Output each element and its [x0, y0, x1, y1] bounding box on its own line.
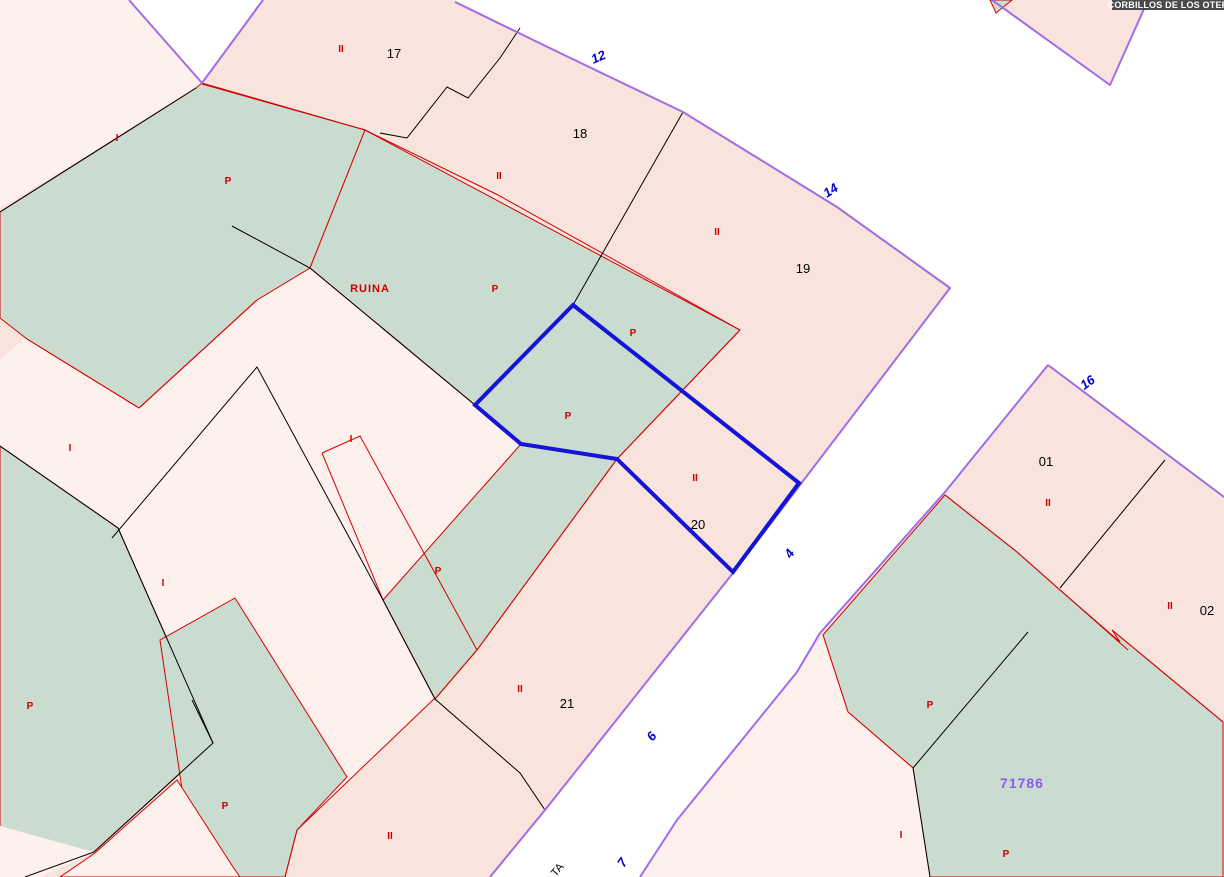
- parcel-number-21: 21: [560, 696, 574, 711]
- use-label: P: [435, 566, 442, 577]
- use-label: II: [692, 473, 698, 484]
- use-label: II: [714, 227, 720, 238]
- use-label: II: [1045, 498, 1051, 509]
- use-label: P: [1003, 849, 1010, 860]
- use-label: I: [350, 434, 353, 445]
- use-label: II: [1167, 601, 1173, 612]
- cadastral-map-viewport[interactable]: 17 18 19 20 21 01 02 II I P II P II P P …: [0, 0, 1224, 877]
- use-label: P: [927, 700, 934, 711]
- use-label: P: [27, 701, 34, 712]
- cadastral-map-canvas[interactable]: 17 18 19 20 21 01 02 II I P II P II P P …: [0, 0, 1224, 877]
- use-label: I: [162, 578, 165, 589]
- use-label: II: [387, 831, 393, 842]
- street-name-fragment: TA: [549, 861, 567, 877]
- use-label: P: [225, 176, 232, 187]
- block-number-label: 71786: [1000, 775, 1044, 791]
- use-label: I: [900, 830, 903, 841]
- use-label: II: [338, 44, 344, 55]
- use-label: II: [517, 684, 523, 695]
- ruina-label: RUINA: [350, 283, 390, 295]
- use-label: II: [496, 171, 502, 182]
- street-number-7: 7: [614, 855, 631, 870]
- parcel-number-02: 02: [1200, 603, 1214, 618]
- street-number-4: 4: [781, 546, 798, 562]
- street-number-12: 12: [589, 47, 609, 67]
- parcel-number-01: 01: [1039, 454, 1053, 469]
- use-label: I: [116, 133, 119, 144]
- top-right-block[interactable]: [992, 0, 1148, 85]
- use-label: P: [565, 411, 572, 422]
- use-label: P: [492, 284, 499, 295]
- use-label: P: [630, 328, 637, 339]
- map-tooltip: CORBILLOS DE LOS OTER: [1108, 0, 1224, 10]
- use-label: I: [69, 443, 72, 454]
- parcel-number-19: 19: [796, 261, 810, 276]
- tooltip-label: CORBILLOS DE LOS OTER: [1108, 0, 1224, 10]
- use-label: P: [222, 801, 229, 812]
- parcel-number-17: 17: [387, 46, 401, 61]
- street-number-14: 14: [820, 180, 841, 201]
- street-number-6: 6: [643, 728, 660, 744]
- parcel-number-18: 18: [573, 126, 587, 141]
- parcel-number-20: 20: [691, 517, 705, 532]
